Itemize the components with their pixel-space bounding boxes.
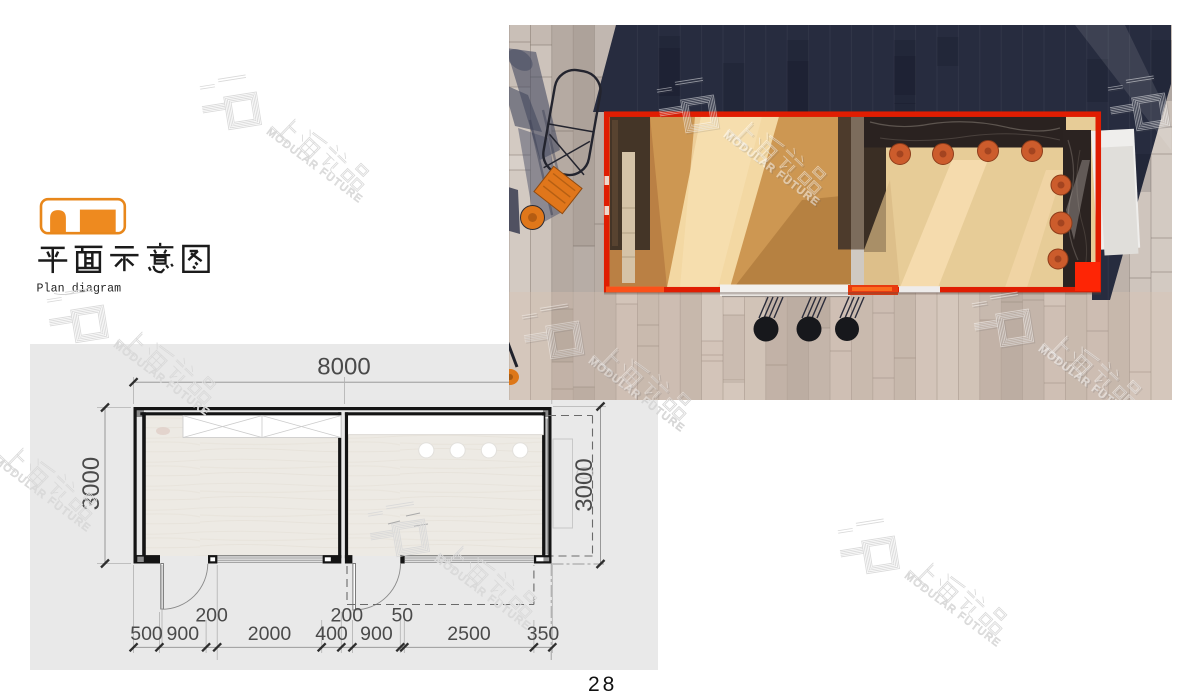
svg-text:8000: 8000 (317, 354, 370, 381)
svg-text:900: 900 (360, 623, 393, 645)
svg-text:50: 50 (391, 605, 413, 627)
svg-text:200: 200 (331, 605, 364, 627)
svg-text:500: 500 (130, 623, 163, 645)
svg-text:2500: 2500 (447, 623, 491, 645)
svg-text:28: 28 (588, 673, 617, 696)
svg-text:Plan diagram: Plan diagram (37, 283, 122, 296)
svg-text:3000: 3000 (571, 458, 598, 511)
svg-text:900: 900 (167, 623, 200, 645)
svg-text:2000: 2000 (248, 623, 292, 645)
svg-text:200: 200 (195, 605, 228, 627)
svg-text:3000: 3000 (78, 457, 105, 510)
svg-text:350: 350 (527, 623, 560, 645)
